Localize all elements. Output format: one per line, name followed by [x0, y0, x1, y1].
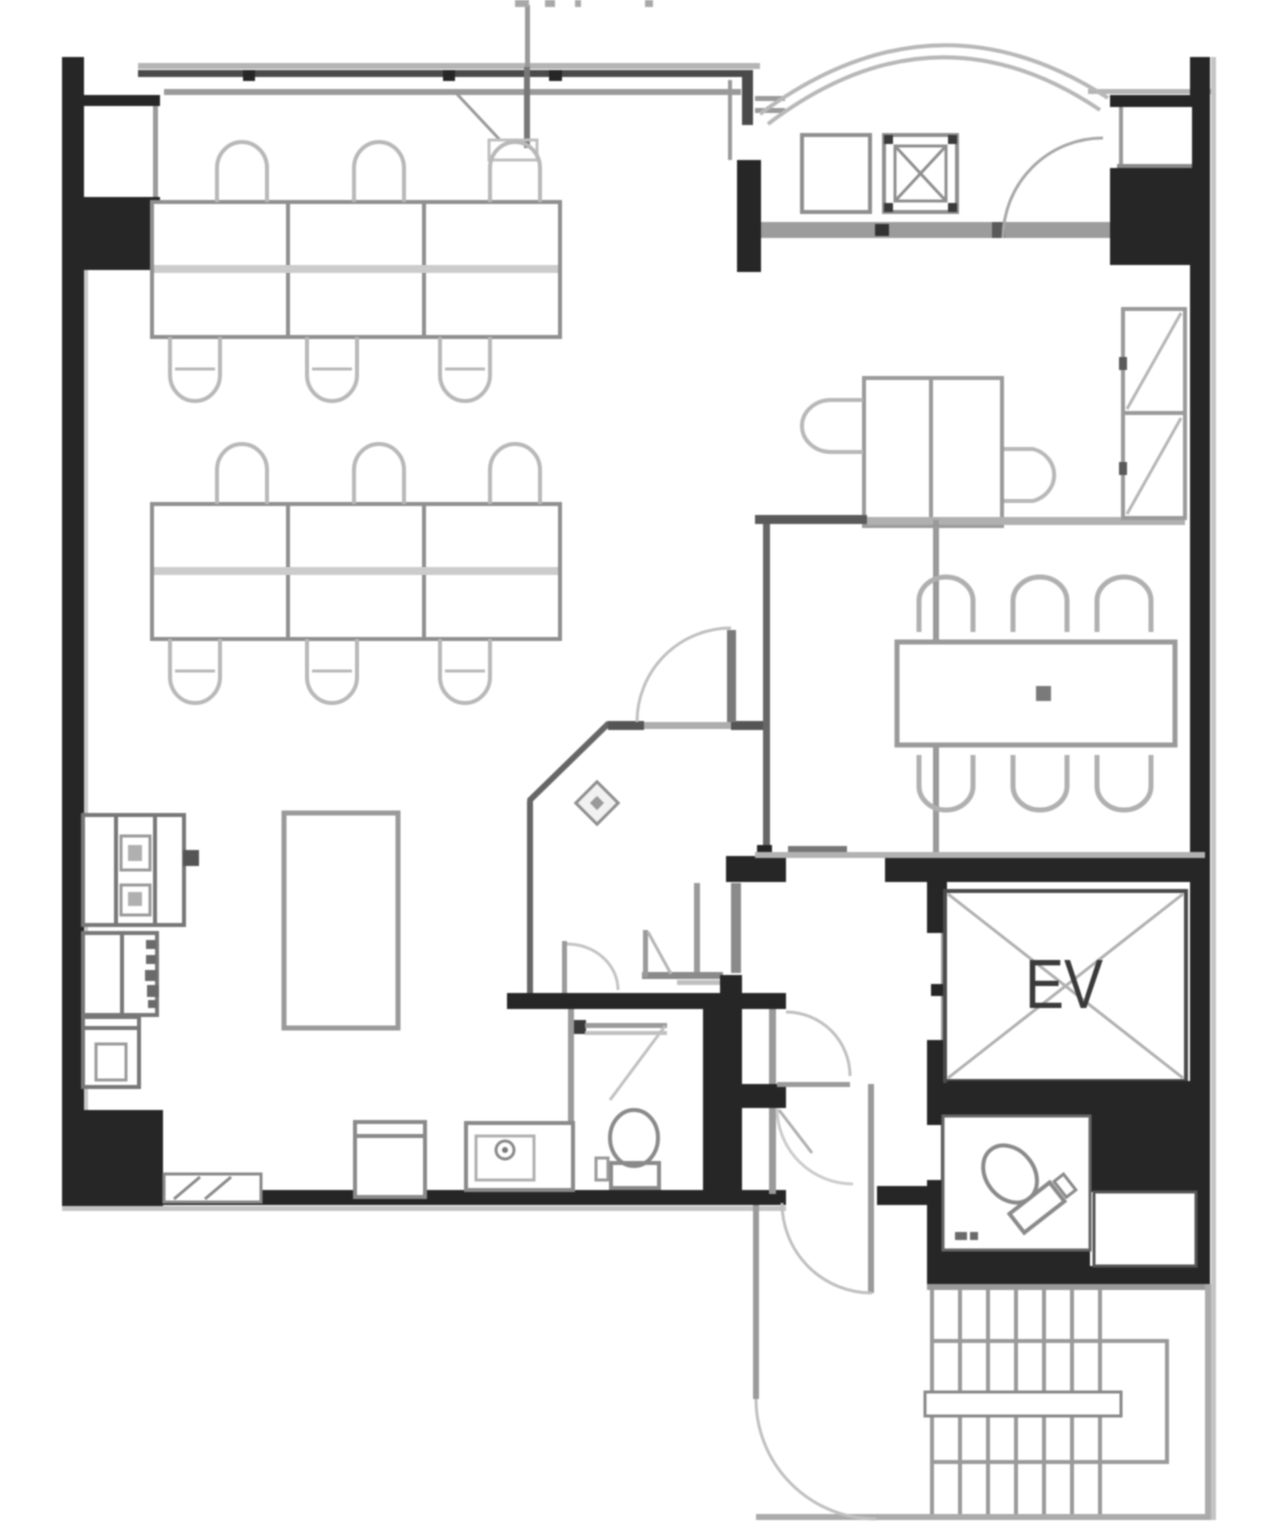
svg-text:EV: EV	[1025, 945, 1103, 1023]
